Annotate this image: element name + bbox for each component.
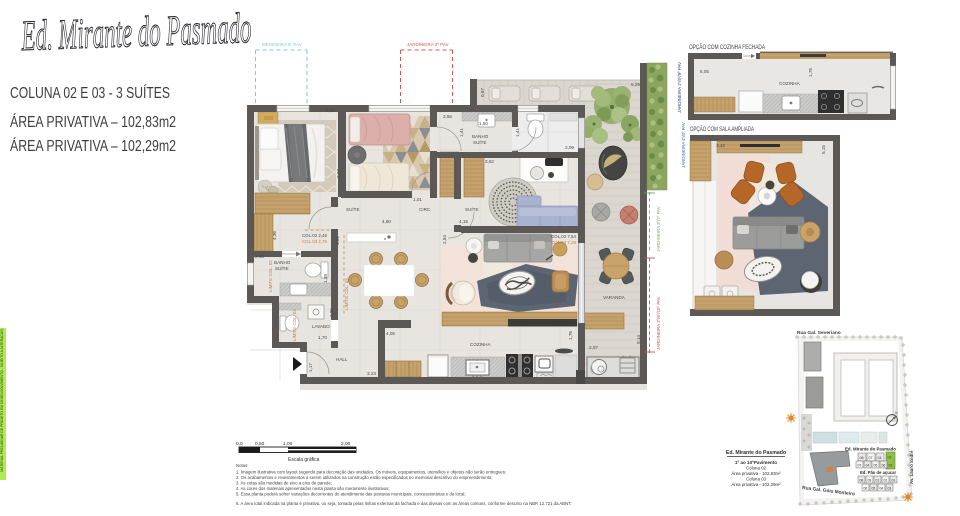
- svg-text:Área privativa - 102,29m²: Área privativa - 102,29m²: [731, 482, 781, 487]
- svg-text:3. As cotas são medidas de eix: 3. As cotas são medidas de eixo a eixo d…: [236, 481, 332, 486]
- svg-text:08: 08: [860, 456, 864, 460]
- svg-text:07: 07: [869, 456, 873, 460]
- svg-text:3,23: 3,23: [367, 371, 376, 376]
- svg-text:MATERIAL PRELIMINAR DE PROJETO: MATERIAL PRELIMINAR DE PROJETO EM DESENV…: [0, 329, 4, 472]
- svg-text:3,42: 3,42: [716, 143, 725, 148]
- svg-text:04: 04: [866, 464, 870, 468]
- svg-text:1,70: 1,70: [318, 335, 327, 340]
- svg-text:COL.02 7,54: COL.02 7,54: [551, 234, 576, 239]
- svg-text:6. A área total indicada na pl: 6. A área total indicada na planta é pri…: [236, 501, 572, 506]
- svg-text:02: 02: [888, 456, 892, 460]
- svg-text:SUÍTE: SUÍTE: [346, 206, 360, 212]
- svg-text:SUÍTE: SUÍTE: [473, 139, 487, 145]
- svg-text:0,50: 0,50: [255, 441, 265, 447]
- svg-text:COL.03 7,28: COL.03 7,28: [551, 240, 576, 245]
- svg-text:05: 05: [874, 464, 878, 468]
- svg-text:CIRC.: CIRC.: [419, 207, 432, 212]
- svg-text:JARDINEIRA 4º/8º PAV: JARDINEIRA 4º/8º PAV: [681, 122, 686, 168]
- svg-text:9,14: 9,14: [636, 335, 641, 344]
- svg-text:Coluna 02: Coluna 02: [746, 466, 767, 471]
- svg-text:OPÇÃO COM SALA AMPLIADA: OPÇÃO COM SALA AMPLIADA: [690, 126, 754, 133]
- svg-text:3,56: 3,56: [443, 114, 452, 119]
- svg-text:Av. Lauro Sodré: Av. Lauro Sodré: [909, 450, 914, 484]
- svg-text:1,38: 1,38: [323, 274, 328, 283]
- svg-text:04: 04: [878, 456, 882, 460]
- svg-text:4,36: 4,36: [272, 231, 277, 240]
- svg-text:Rua Gal. Severiano: Rua Gal. Severiano: [797, 330, 841, 336]
- svg-text:1º ao 10ºPavimento: 1º ao 10ºPavimento: [735, 460, 777, 465]
- svg-text:2,84: 2,84: [442, 235, 447, 244]
- svg-text:6,05: 6,05: [700, 69, 709, 74]
- svg-text:2,07: 2,07: [589, 345, 598, 350]
- svg-text:1,17: 1,17: [308, 363, 313, 372]
- svg-text:LIMITE COL. 02: LIMITE COL. 02: [268, 260, 273, 292]
- svg-text:1,76: 1,76: [808, 68, 813, 77]
- svg-text:COL.03 2,75: COL.03 2,75: [302, 239, 327, 244]
- svg-text:Ed. Mirante do Pasmado: Ed. Mirante do Pasmado: [726, 450, 786, 456]
- svg-text:LAVABO: LAVABO: [312, 324, 330, 329]
- svg-text:1,00: 1,00: [283, 441, 293, 447]
- svg-text:HALL: HALL: [336, 357, 348, 362]
- svg-text:02: 02: [884, 479, 888, 483]
- svg-text:06: 06: [864, 487, 868, 491]
- svg-text:0,0: 0,0: [236, 441, 243, 447]
- svg-text:MEDINEIRA 8º PAV: MEDINEIRA 8º PAV: [262, 42, 302, 47]
- svg-text:2,09: 2,09: [565, 145, 574, 150]
- svg-text:N: N: [895, 411, 898, 415]
- svg-text:5,15: 5,15: [821, 145, 826, 154]
- svg-text:BANHO: BANHO: [472, 134, 489, 139]
- svg-text:COZINHA: COZINHA: [470, 342, 492, 347]
- svg-text:2. Os acabamentos e revestimen: 2. Os acabamentos e revestimentos a sere…: [236, 475, 493, 480]
- svg-text:ÁREA PRIVATIVA – 102,29m2: ÁREA PRIVATIVA – 102,29m2: [10, 136, 176, 155]
- svg-text:JARDINEIRA 2º/6º/10º PAV: JARDINEIRA 2º/6º/10º PAV: [656, 296, 661, 350]
- svg-text:5. Essa planta poderá sofrer v: 5. Essa planta poderá sofrer variações d…: [236, 492, 466, 497]
- svg-text:Notas:: Notas:: [236, 463, 248, 468]
- svg-text:2,00: 2,00: [341, 441, 351, 447]
- svg-text:COZINHA: COZINHA: [779, 81, 801, 86]
- svg-text:1,41: 1,41: [459, 128, 464, 137]
- svg-text:BANHO: BANHO: [274, 260, 291, 265]
- svg-text:0,87: 0,87: [480, 88, 485, 97]
- svg-text:Ed. Mirante do Pasmado: Ed. Mirante do Pasmado: [20, 5, 252, 60]
- svg-text:5,29: 5,29: [631, 82, 640, 87]
- svg-text:03: 03: [892, 479, 896, 483]
- svg-text:Coluna 03: Coluna 03: [746, 477, 767, 482]
- svg-text:JARDINEIRA 1º/5º/9º PAV: JARDINEIRA 1º/5º/9º PAV: [677, 62, 682, 113]
- svg-text:04: 04: [880, 487, 884, 491]
- svg-text:OPÇÃO COM COZINHA FECHADA: OPÇÃO COM COZINHA FECHADA: [689, 44, 765, 51]
- svg-text:SUÍTE: SUÍTE: [275, 265, 289, 271]
- svg-text:1,35: 1,35: [329, 308, 334, 317]
- svg-text:Área privativa - 102,83m²: Área privativa - 102,83m²: [731, 471, 781, 476]
- svg-text:LIMITE COL. 03: LIMITE COL. 03: [344, 278, 349, 310]
- svg-text:4,61: 4,61: [335, 236, 340, 245]
- svg-text:LIMITE COL. 02: LIMITE COL. 02: [292, 309, 297, 341]
- svg-text:COLUNA 02 E 03 - 3 SUÍTES: COLUNA 02 E 03 - 3 SUÍTES: [10, 83, 170, 102]
- svg-text:ÁREA PRIVATIVA – 102,83m2: ÁREA PRIVATIVA – 102,83m2: [10, 112, 176, 131]
- svg-text:03: 03: [888, 487, 892, 491]
- svg-text:Ed. Mirante do Pasmado: Ed. Mirante do Pasmado: [845, 447, 896, 452]
- svg-text:05: 05: [872, 487, 876, 491]
- svg-text:1,76: 1,76: [568, 331, 573, 340]
- svg-text:4,15: 4,15: [459, 219, 468, 224]
- svg-text:3,62: 3,62: [485, 159, 494, 164]
- svg-text:SUÍTE: SUÍTE: [465, 206, 479, 212]
- svg-text:COL.02 2,45: COL.02 2,45: [302, 233, 327, 238]
- svg-text:4. As cores dos materiais apre: 4. As cores dos materiais apresentados n…: [236, 486, 390, 491]
- svg-text:01: 01: [876, 479, 880, 483]
- svg-text:2,67: 2,67: [336, 169, 341, 178]
- svg-text:2,43: 2,43: [255, 254, 264, 259]
- svg-text:4,80: 4,80: [382, 219, 391, 224]
- svg-text:2,81: 2,81: [326, 108, 335, 113]
- svg-text:08: 08: [860, 479, 864, 483]
- svg-text:JARDINEIRA 3º/7º PAV: JARDINEIRA 3º/7º PAV: [656, 206, 661, 252]
- svg-text:1,41: 1,41: [515, 128, 520, 137]
- svg-text:Escala gráfica: Escala gráfica: [288, 457, 320, 463]
- svg-text:07: 07: [858, 464, 862, 468]
- svg-text:JARDINEIRA 3º PAV: JARDINEIRA 3º PAV: [407, 42, 449, 47]
- svg-text:06: 06: [882, 464, 886, 468]
- svg-text:03: 03: [889, 464, 893, 468]
- svg-text:VARANDA: VARANDA: [603, 295, 626, 300]
- svg-text:1. Imagem ilustrativa com layo: 1. Imagem ilustrativa com layout sugerid…: [236, 470, 506, 475]
- svg-text:09: 09: [868, 479, 872, 483]
- svg-text:Ed. Pão de açucar: Ed. Pão de açucar: [860, 470, 896, 475]
- svg-text:1,01: 1,01: [413, 197, 422, 202]
- svg-text:4,05: 4,05: [386, 331, 395, 336]
- svg-text:1,50: 1,50: [479, 121, 488, 126]
